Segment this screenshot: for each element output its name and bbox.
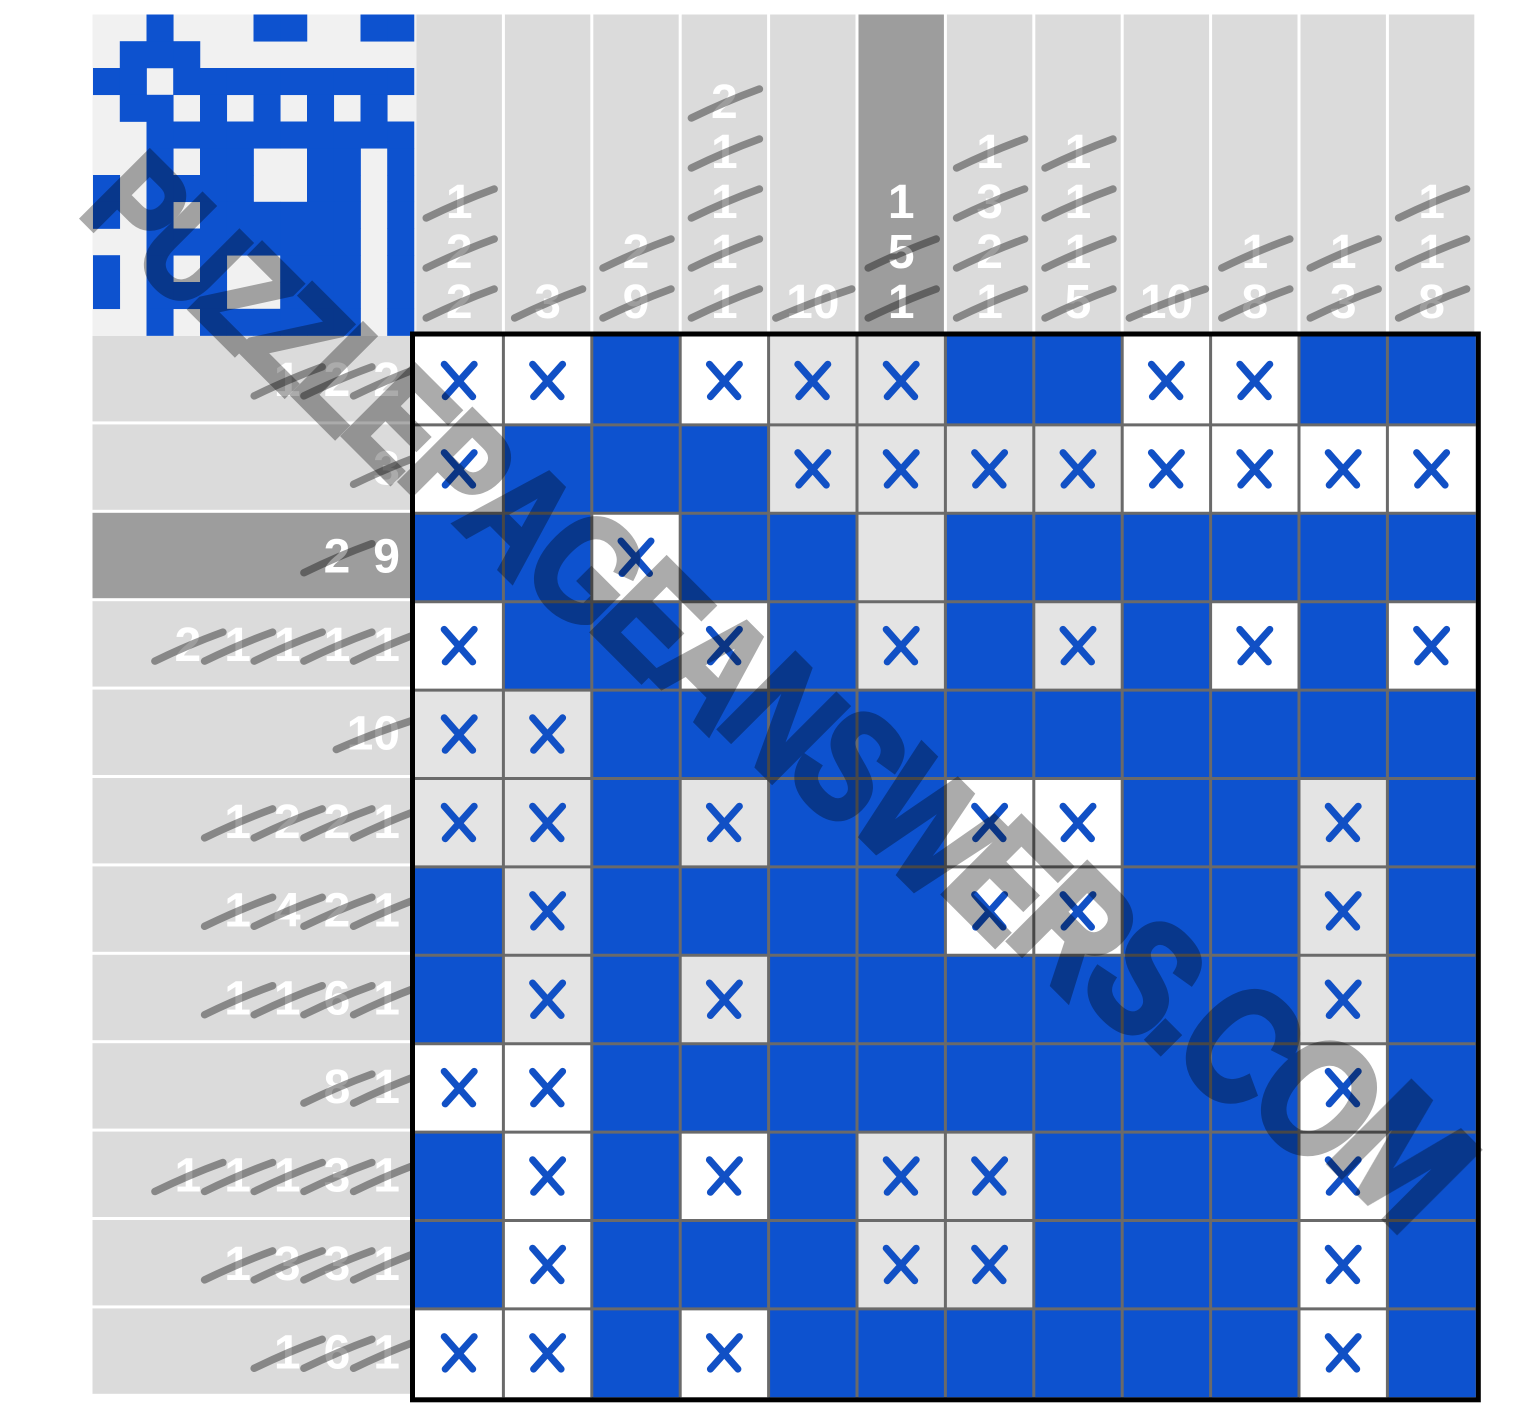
svg-text:9: 9: [373, 531, 400, 584]
svg-text:1: 1: [888, 176, 915, 229]
